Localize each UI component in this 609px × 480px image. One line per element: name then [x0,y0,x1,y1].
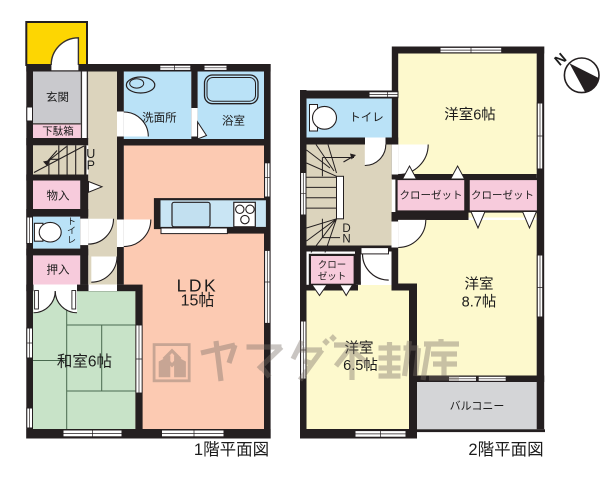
svg-text:レ: レ [67,235,76,245]
svg-text:浴室: 浴室 [222,114,245,128]
svg-text:玄関: 玄関 [46,90,69,104]
svg-text:クローゼット: クローゼット [471,190,534,202]
svg-text:洗面所: 洗面所 [142,112,177,125]
svg-text:クロー: クロー [318,260,347,271]
svg-text:下駄箱: 下駄箱 [42,125,74,138]
svg-text:クローゼット: クローゼット [400,190,463,202]
svg-text:物入: 物入 [47,189,70,203]
svg-text:N: N [342,234,350,246]
svg-text:P: P [87,159,95,173]
svg-text:バルコニー: バルコニー [450,400,505,413]
svg-text:洋室: 洋室 [465,276,494,293]
svg-text:トイレ: トイレ [349,112,384,124]
svg-text:洋室6帖: 洋室6帖 [444,107,496,124]
svg-text:15帖: 15帖 [181,292,215,310]
svg-text:8.7帖: 8.7帖 [462,294,497,311]
svg-text:和室6帖: 和室6帖 [57,353,112,371]
svg-text:2階平面図: 2階平面図 [468,440,543,459]
svg-text:ゼット: ゼット [318,271,347,283]
svg-text:押入: 押入 [47,263,70,277]
svg-text:1階平面図: 1階平面図 [194,440,269,459]
